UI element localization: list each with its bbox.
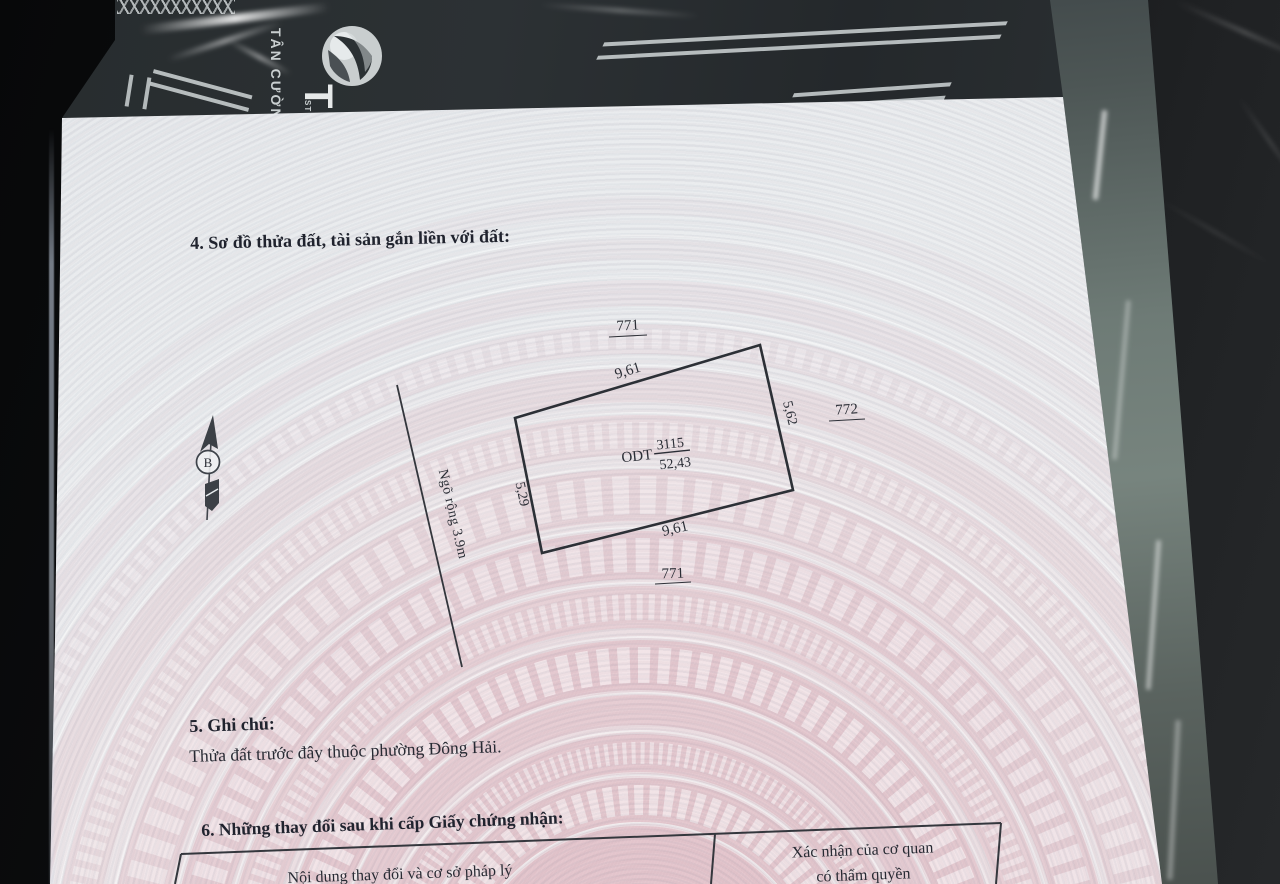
paper-edge-highlight <box>49 128 54 884</box>
fabric-highlight <box>1158 198 1273 266</box>
brand-globe-logo <box>320 24 384 88</box>
adjacent-parcel-top: 771 <box>616 317 639 334</box>
fabric-highlight <box>1237 96 1280 188</box>
folder-zigzag-edge <box>117 0 235 14</box>
north-arrow-icon: B <box>197 415 220 520</box>
section5-heading: 5. Ghi chú: <box>189 713 275 737</box>
edge-right-length: 5,62 <box>779 399 799 426</box>
land-use-code: ODT <box>621 447 653 466</box>
adjacent-parcel-bottom: 771 <box>661 566 684 583</box>
parcel-boundary <box>515 345 793 553</box>
brand-initial-letter: T <box>295 84 340 110</box>
alley-label: Ngõ rộng 3.9m <box>435 468 470 561</box>
edge-top-length: 9,61 <box>613 360 643 383</box>
parcel-id-fraction: ODT 3115 52,43 <box>620 435 692 477</box>
north-symbol: B <box>204 455 213 470</box>
fabric-highlight <box>1175 0 1280 65</box>
photo-scene: TÂN CƯỜNG ST T <box>0 0 1280 884</box>
parcel-diagram: B Ngõ rộng 3.9m 771 9,61 5,62 772 ODT 31… <box>150 290 910 690</box>
parcel-area: 52,43 <box>659 455 692 473</box>
table-col2-header: Xác nhận của cơ quan có thẩm quyền <box>762 836 964 884</box>
adjacent-parcel-right: 772 <box>835 401 859 419</box>
